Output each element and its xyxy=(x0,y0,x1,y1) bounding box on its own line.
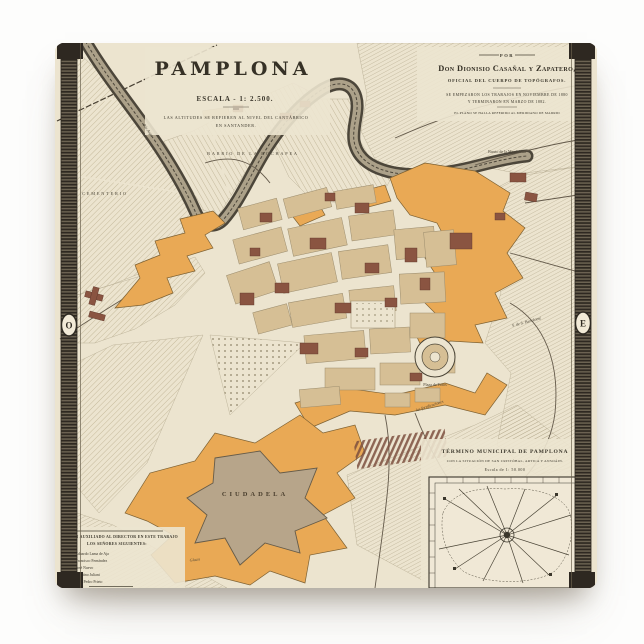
cathedral xyxy=(450,233,472,249)
inset-scale: Escala de 1: 50.000 xyxy=(485,467,526,472)
west-edge-letter: O xyxy=(65,321,72,331)
attribution-footnote: EL PLANO SE HALLA REFERIDO AL MERIDIANO … xyxy=(454,111,560,115)
attribution-author: Don Dionisio Casañal y Zapatero, xyxy=(438,64,575,73)
legend-header-1: HAN AUXILIADO AL DIRECTOR EN ESTE TRABAJ… xyxy=(69,535,178,539)
label-rochapea: BARRIO DE LA ROCHAPEA xyxy=(207,151,299,156)
ceramic-tile: PAMPLONA ESCALA - 1: 2.500. LAS ALTITUDE… xyxy=(55,43,597,588)
map-title: PAMPLONA xyxy=(155,58,312,80)
label-magdalena: Barrio de la Magdalena xyxy=(488,149,526,154)
attribution-dates-1: SE EMPEZARON LOS TRABAJOS EN NOVIEMBRE D… xyxy=(446,93,568,97)
label-glacis: Glacis xyxy=(189,557,200,563)
attribution-por: POR xyxy=(500,53,514,58)
label-cementerio: CEMENTERIO xyxy=(82,191,128,196)
label-ciudadela: CIUDADELA xyxy=(222,491,288,498)
attribution-panel xyxy=(417,47,591,121)
altitude-note-1: LAS ALTITUDES SE REFIEREN AL NIVEL DEL C… xyxy=(164,115,309,120)
inset-map: TÉRMINO MUNICIPAL DE PAMPLONA CON LA SIT… xyxy=(421,439,589,588)
inset-title: TÉRMINO MUNICIPAL DE PAMPLONA xyxy=(442,447,569,455)
legend-header-2: LOS SEÑORES SIGUIENTES: xyxy=(87,541,147,546)
east-edge-letter: E xyxy=(580,319,586,329)
attribution-dates-2: Y TERMINARON EN MARZO DE 1882. xyxy=(468,100,547,104)
altitude-note-2: EN SANTANDER. xyxy=(216,123,257,128)
product-photo: PAMPLONA ESCALA - 1: 2.500. LAS ALTITUDE… xyxy=(0,0,644,644)
map-scale: ESCALA - 1: 2.500. xyxy=(197,95,274,103)
plaza-de-toros xyxy=(415,337,455,377)
map-canvas: PAMPLONA ESCALA - 1: 2.500. LAS ALTITUDE… xyxy=(55,43,597,588)
label-plaza-toros: Plaza de Toros xyxy=(423,382,447,387)
attribution-role: OFICIAL DEL CUERPO DE TOPÓGRAFOS. xyxy=(448,78,567,83)
